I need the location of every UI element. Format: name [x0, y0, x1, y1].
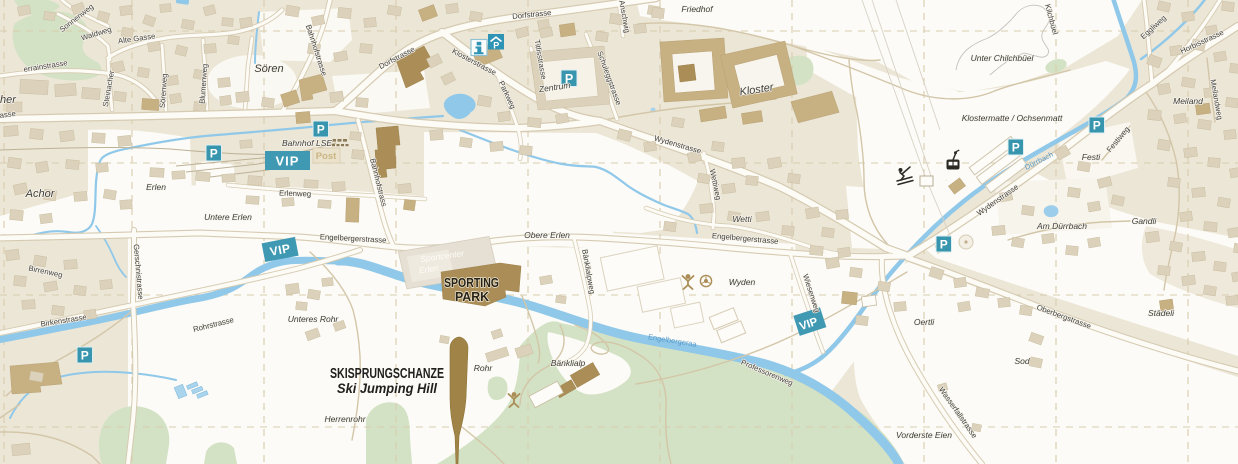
svg-text:Klostermatte / Ochsenmatt: Klostermatte / Ochsenmatt [962, 113, 1063, 123]
svg-text:Unteres Rohr: Unteres Rohr [288, 314, 340, 324]
svg-text:P: P [81, 349, 89, 363]
svg-text:Ski Jumping Hill: Ski Jumping Hill [337, 380, 438, 396]
svg-text:P: P [493, 40, 499, 50]
svg-text:Friedhof: Friedhof [681, 4, 714, 14]
svg-text:Sören: Sören [254, 63, 283, 75]
svg-text:Städeli: Städeli [1148, 308, 1175, 318]
svg-text:P: P [940, 238, 948, 252]
svg-text:Obere Erlen: Obere Erlen [524, 230, 570, 240]
svg-text:Post: Post [316, 151, 337, 162]
svg-text:SPORTING: SPORTING [444, 275, 499, 290]
svg-text:Unter Chilchbüel: Unter Chilchbüel [971, 53, 1035, 63]
svg-text:Sod: Sod [1014, 356, 1029, 366]
svg-text:Wyden: Wyden [729, 277, 756, 287]
svg-text:Bänklialp: Bänklialp [551, 358, 586, 368]
svg-text:Gandli: Gandli [1132, 216, 1158, 226]
svg-text:Erlen: Erlen [146, 182, 166, 192]
svg-text:Herrenrohr: Herrenrohr [324, 414, 366, 424]
svg-text:P: P [1012, 141, 1020, 155]
svg-text:Wetti: Wetti [732, 214, 752, 224]
svg-text:P: P [317, 123, 325, 137]
svg-text:Festi: Festi [1082, 152, 1102, 162]
svg-text:Erlenweg: Erlenweg [279, 188, 311, 198]
svg-text:her: her [0, 94, 17, 106]
svg-text:Oertli: Oertli [914, 317, 935, 327]
svg-text:Untere Erlen: Untere Erlen [204, 212, 252, 222]
svg-text:VIP: VIP [276, 154, 300, 169]
svg-text:Am Dürrbach: Am Dürrbach [1036, 221, 1087, 231]
svg-text:Meiland: Meiland [1173, 96, 1203, 106]
svg-text:Vorderste Eien: Vorderste Eien [896, 430, 952, 440]
svg-text:PARK: PARK [455, 289, 490, 304]
svg-text:P: P [210, 147, 218, 161]
svg-text:P: P [1093, 119, 1101, 133]
svg-text:Bahnhof LSE: Bahnhof LSE [282, 138, 332, 148]
svg-text:Achor: Achor [25, 188, 56, 200]
svg-text:Rohr: Rohr [474, 363, 494, 373]
